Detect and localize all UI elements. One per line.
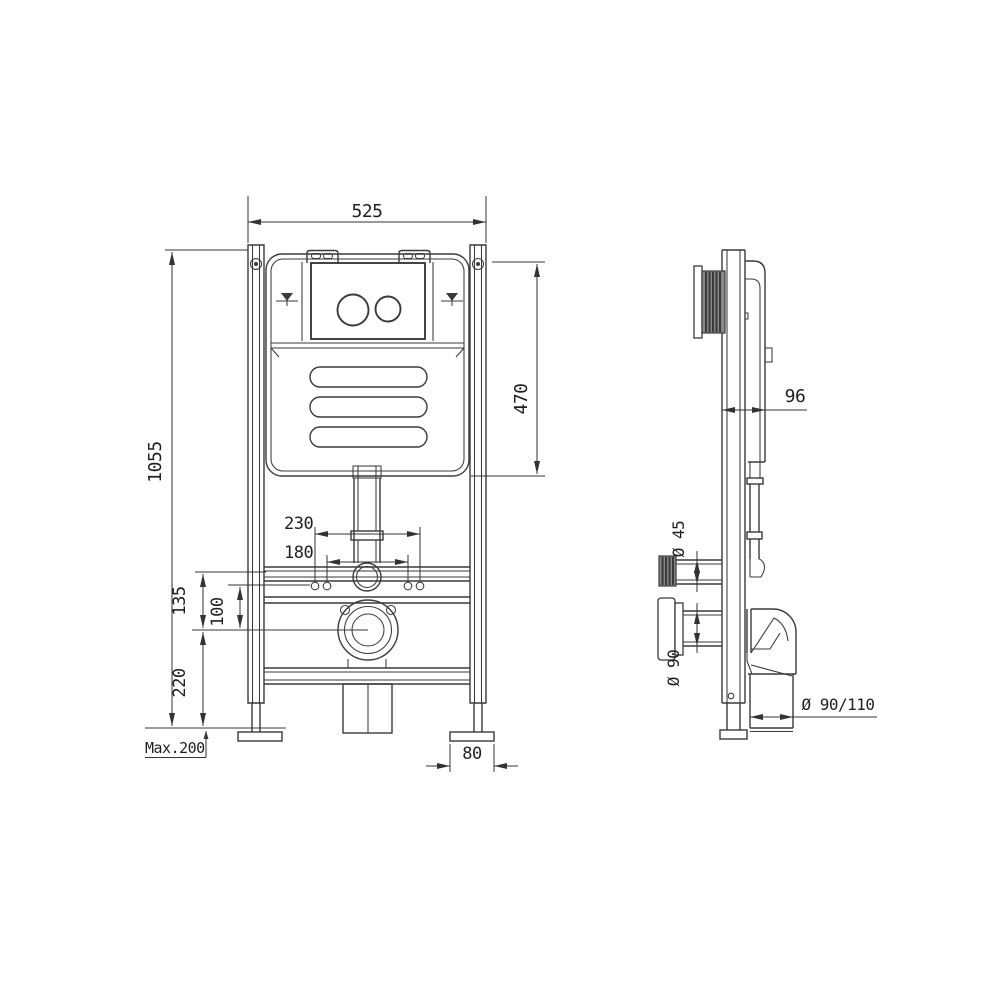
technical-drawing: 525 1055 470 230 180 135 [0, 0, 1000, 1000]
flush-plate [311, 263, 425, 339]
dim-label-foot-width: 80 [462, 744, 482, 764]
water-level-icon [276, 293, 463, 306]
waste-outlet-circle [338, 600, 398, 668]
access-slots [310, 367, 427, 447]
dim-label-bolt-outer: 230 [284, 514, 313, 534]
dim-label-bolt-inner: 180 [284, 543, 313, 563]
dim-cistern-height: 470 [471, 262, 545, 476]
dim-foot-adjustment: Max.200 [145, 731, 209, 758]
dim-frame-height: 1055 [145, 250, 248, 726]
cistern-side [745, 261, 772, 484]
dim-bolt-spacing-inner: 180 [284, 543, 408, 581]
flush-button-large [338, 295, 369, 326]
dim-waste-elbow-dia: Ø 90/110 [750, 695, 877, 717]
dim-label-fixing-to-outlet: 100 [208, 597, 228, 626]
dim-label-frame-depth: 96 [785, 386, 806, 407]
waste-elbow [747, 609, 796, 732]
flush-button-small [376, 297, 401, 322]
dim-label-water-inlet-dia: Ø 45 [669, 521, 688, 558]
cistern-front [266, 254, 469, 476]
flush-shaft-bellows [694, 266, 725, 338]
dim-label-flush-outlet-dia: Ø 90 [664, 650, 683, 687]
dimensions: 525 1055 470 230 180 135 [145, 196, 877, 772]
dim-foot-width: 80 [426, 744, 518, 772]
frame-left-rail [248, 245, 264, 703]
dim-label-foot-adjustment: Max.200 [145, 739, 205, 757]
front-view [145, 245, 494, 741]
flush-pipe-side [747, 484, 764, 577]
dim-outlet-height: 220 [170, 632, 203, 726]
flush-pipe-front [351, 466, 383, 591]
dim-label-frame-height: 1055 [145, 441, 166, 482]
dim-label-frame-width: 525 [351, 201, 382, 222]
dim-label-flush-to-outlet: 135 [170, 586, 190, 615]
drawing-page: 525 1055 470 230 180 135 [0, 0, 1000, 1000]
frame-right-rail [470, 245, 486, 703]
dim-label-cistern-height: 470 [511, 383, 532, 414]
dim-label-outlet-height: 220 [170, 668, 190, 697]
mounting-brackets [307, 251, 430, 264]
dim-frame-width: 525 [248, 196, 486, 243]
adjustable-feet [238, 703, 494, 741]
water-inlet [659, 556, 722, 586]
dim-label-waste-elbow-dia: Ø 90/110 [801, 695, 874, 714]
drain-duct [343, 684, 392, 733]
fixing-holes [311, 582, 424, 590]
